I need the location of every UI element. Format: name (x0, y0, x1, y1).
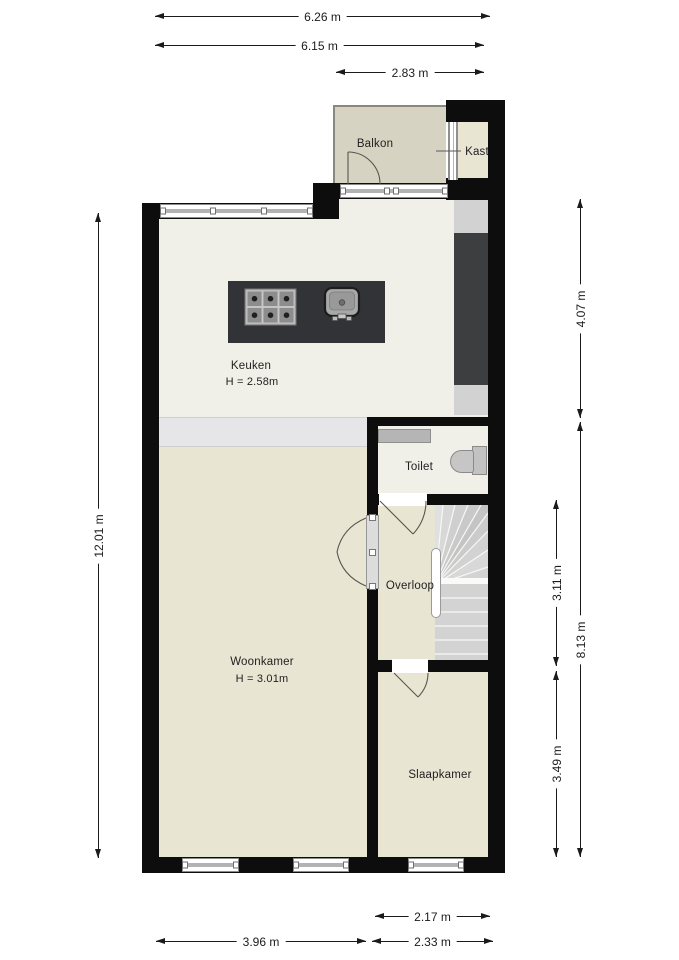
room-height-woonkamer: H = 3.01m (236, 673, 289, 685)
room-label-toilet: Toilet (405, 461, 433, 473)
room-label-kast: Kast (465, 146, 489, 158)
dim-right-slaapkamer-depth: 3.49 m (556, 671, 557, 857)
door-arcs-overlay (0, 0, 679, 960)
dim-label: 3.49 m (550, 740, 564, 789)
dim-bottom-slaapkamer-width: 2.33 m (372, 941, 493, 942)
dim-label: 2.83 m (386, 66, 435, 80)
room-label-woonkamer: Woonkamer (230, 656, 294, 668)
dim-top-inner-width: 6.15 m (155, 45, 484, 46)
floor-plan: Balkon Kast Keuken H = 2.58m Toilet Over… (0, 0, 679, 960)
dim-right-keuken-depth: 4.07 m (580, 199, 581, 418)
dim-label: 4.07 m (574, 284, 588, 333)
dim-label: 6.15 m (295, 39, 344, 53)
dim-left-total-height: 12.01 m (98, 213, 99, 858)
dim-label: 2.17 m (408, 910, 457, 924)
room-label-overloop: Overloop (386, 580, 434, 592)
room-label-keuken: Keuken (231, 360, 271, 372)
room-label-slaapkamer: Slaapkamer (408, 769, 471, 781)
dim-right-lower-depth: 8.13 m (580, 422, 581, 857)
dim-label: 3.96 m (237, 935, 286, 949)
room-label-balkon: Balkon (357, 138, 393, 150)
dim-label: 3.11 m (550, 559, 564, 607)
dim-bottom-slaapkamer-inner: 2.17 m (375, 916, 490, 917)
dim-bottom-woonkamer-width: 3.96 m (156, 941, 366, 942)
dim-label: 2.33 m (408, 935, 457, 949)
dim-top-full-width: 6.26 m (155, 16, 490, 17)
dim-top-right-section: 2.83 m (336, 72, 484, 73)
dim-label: 12.01 m (92, 508, 106, 563)
dim-right-overloop-depth: 3.11 m (556, 500, 557, 666)
dim-label: 6.26 m (298, 10, 347, 24)
dim-label: 8.13 m (574, 615, 588, 664)
room-height-keuken: H = 2.58m (226, 376, 279, 388)
